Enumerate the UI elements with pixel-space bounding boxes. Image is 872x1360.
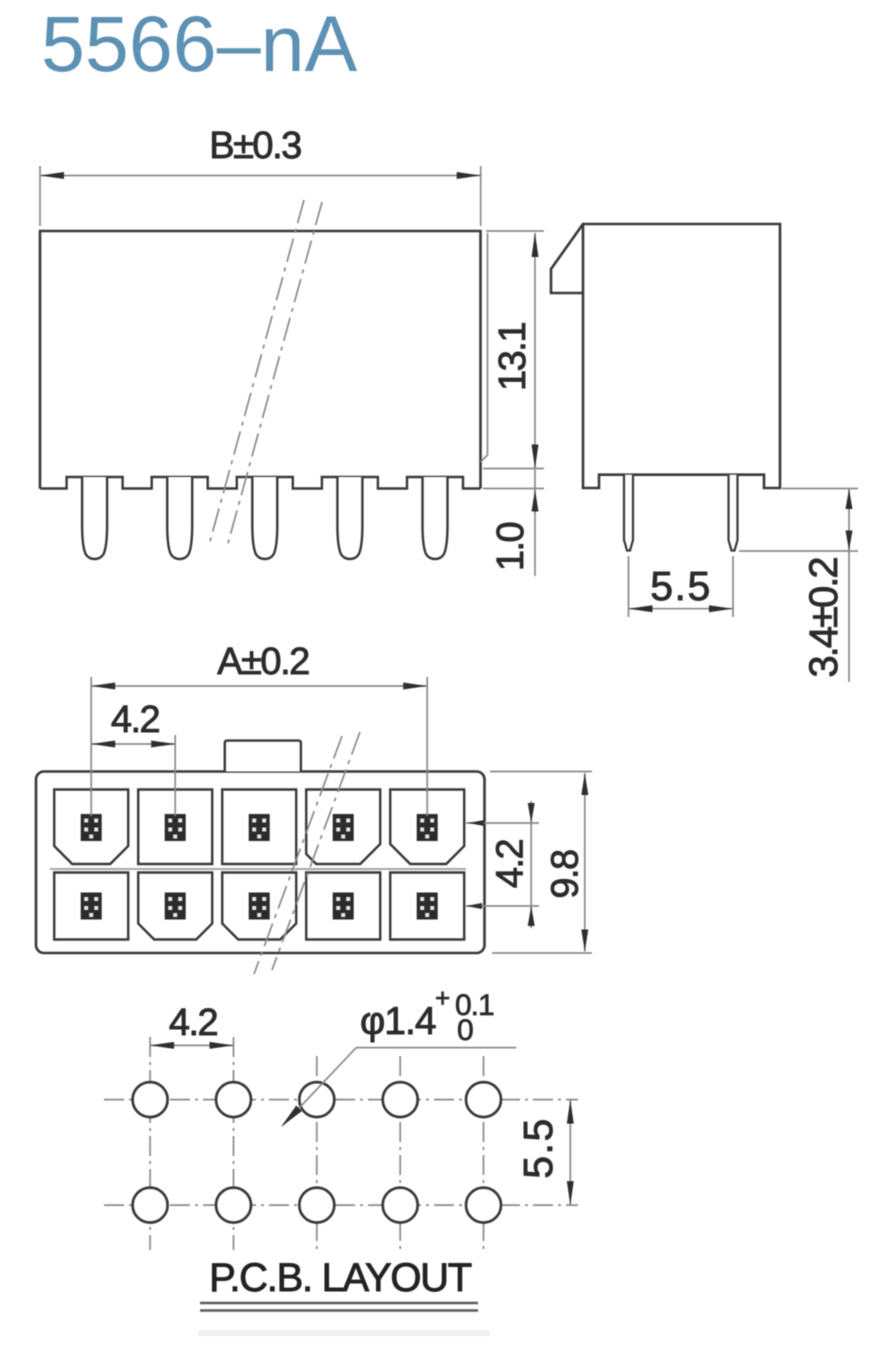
svg-text:4.2: 4.2 — [490, 839, 532, 888]
svg-text:+: + — [435, 983, 450, 1013]
svg-text:5566–nA: 5566–nA — [41, 0, 358, 88]
svg-text:5.5: 5.5 — [650, 563, 712, 609]
svg-text:9.8: 9.8 — [545, 850, 587, 899]
svg-text:5.5: 5.5 — [515, 1117, 561, 1179]
svg-text:B±0.3: B±0.3 — [209, 125, 301, 167]
svg-text:φ1.4: φ1.4 — [360, 1000, 436, 1043]
svg-text:0: 0 — [457, 1014, 474, 1047]
svg-text:3.4±0.2: 3.4±0.2 — [802, 558, 846, 678]
svg-text:P.C.B. LAYOUT: P.C.B. LAYOUT — [209, 1256, 472, 1300]
svg-text:4.2: 4.2 — [111, 699, 160, 741]
svg-text:13.1: 13.1 — [492, 323, 534, 391]
svg-text:1.0: 1.0 — [490, 522, 532, 571]
svg-text:4.2: 4.2 — [169, 1002, 218, 1044]
svg-text:A±0.2: A±0.2 — [217, 641, 309, 683]
